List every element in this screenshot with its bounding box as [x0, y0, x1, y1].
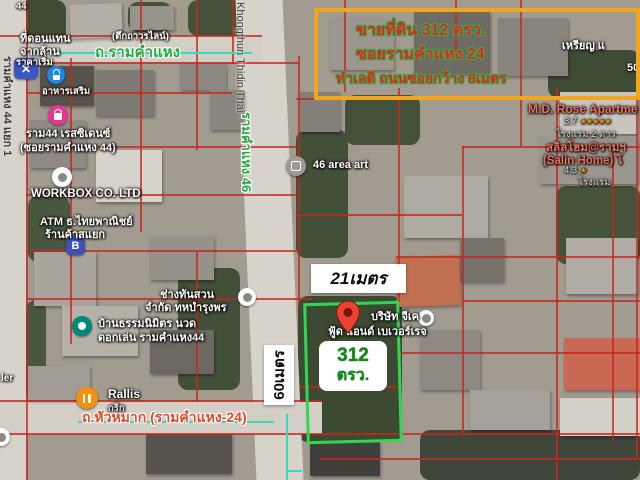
poi-label[interactable]: ler — [1, 373, 13, 384]
poi-label[interactable]: 46 area art — [313, 159, 368, 171]
poi-label[interactable]: WORKBOX CO. LTD — [31, 188, 141, 200]
poi-label[interactable]: Rallis — [108, 387, 140, 401]
area-measurement: 312 ตรว. — [319, 341, 387, 391]
building — [560, 398, 640, 436]
generic-poi-icon[interactable] — [238, 288, 256, 306]
depth-value: 60เมตร — [267, 350, 291, 400]
parcel-line — [70, 58, 72, 344]
building — [130, 6, 174, 30]
building — [460, 238, 504, 282]
sale-ad-box: ขายที่ดิน 312 ตรว. ซอยรามคำแหง 24 ทำเลดี… — [314, 8, 640, 100]
sale-ad-line2: ซอยรามคำแหง 24 — [356, 42, 485, 67]
parcel-line — [396, 256, 640, 258]
poi-label[interactable]: (ซอยรามคำแหง 44) — [20, 138, 116, 156]
generic-poi-icon[interactable] — [52, 167, 72, 187]
sale-ad-line3: ทำเลดี ถนนซอยกว้าง 8เมตร — [336, 68, 507, 90]
parcel-line — [612, 148, 614, 440]
building-red-roof — [564, 338, 640, 390]
parcel-line — [298, 56, 300, 306]
width-measurement: 21เมตร — [311, 264, 406, 293]
building — [150, 236, 214, 280]
art-poi-icon[interactable] — [286, 156, 306, 176]
building — [180, 64, 226, 90]
parcel-line — [296, 214, 462, 216]
rating-value: 4.3 — [564, 165, 577, 176]
poi-label[interactable]: ร้านค้าสแยก — [45, 225, 105, 243]
width-value: 21เมตร — [330, 265, 386, 292]
parcel-line — [196, 252, 198, 402]
area-value: 312 — [337, 346, 369, 366]
lodging-label[interactable]: M.D. Rose Apartme — [528, 102, 638, 116]
building — [566, 238, 638, 294]
tree-patch — [296, 130, 348, 258]
lodging-type-label: โรงแรม — [578, 175, 610, 190]
parcel-line — [398, 352, 640, 354]
tree-patch — [420, 430, 640, 480]
road-label-huamark: ถ.หัวหมาก (รามคำแหง-24) — [82, 407, 247, 429]
spa-poi-icon[interactable] — [72, 316, 92, 336]
building — [146, 434, 232, 474]
parcel-line — [196, 0, 198, 150]
parcel-line — [462, 146, 464, 434]
rating-label: 3.7 ★★★★★ — [564, 116, 611, 127]
road-guide-line — [286, 470, 302, 472]
depth-measurement: 60เมตร — [264, 345, 294, 405]
poi-label[interactable]: (ตึกถาวรไลน์) — [112, 29, 169, 44]
tree-patch — [345, 95, 420, 145]
restaurant-icon[interactable] — [76, 387, 98, 409]
satellite-map[interactable]: ถ.รามคำแหง Khongthun Thidin Thai รามคำแห… — [0, 0, 640, 480]
road-label-khongthun: Khongthun Thidin Thai — [234, 2, 246, 112]
star-rating-icon: ★ — [580, 166, 586, 175]
parcel-line — [320, 458, 640, 460]
road-label-ramkhamhaeng-46: รามคำแหง 46 — [236, 112, 257, 192]
map-pin-icon[interactable] — [335, 300, 361, 339]
building — [404, 176, 488, 238]
poi-label[interactable]: 44 — [16, 1, 27, 12]
building — [470, 390, 550, 430]
area-unit: ตรว. — [337, 366, 369, 386]
parcel-line — [462, 300, 640, 302]
sale-ad-line1: ขายที่ดิน 312 ตรว. — [356, 18, 485, 43]
poi-label[interactable]: อาหารเสริม — [42, 84, 90, 99]
poi-label[interactable]: ดอกเล่น รามคำแหง44 — [98, 328, 204, 346]
parcel-line — [636, 56, 638, 460]
building — [420, 330, 480, 390]
rating-value: 3.7 — [564, 116, 577, 127]
poi-label[interactable]: ราคาเริ่ม — [16, 55, 53, 70]
poi-label[interactable]: กรีก — [108, 401, 125, 416]
star-rating-icon: ★★★★★ — [580, 117, 611, 126]
shopping-bag-icon[interactable] — [48, 105, 68, 125]
